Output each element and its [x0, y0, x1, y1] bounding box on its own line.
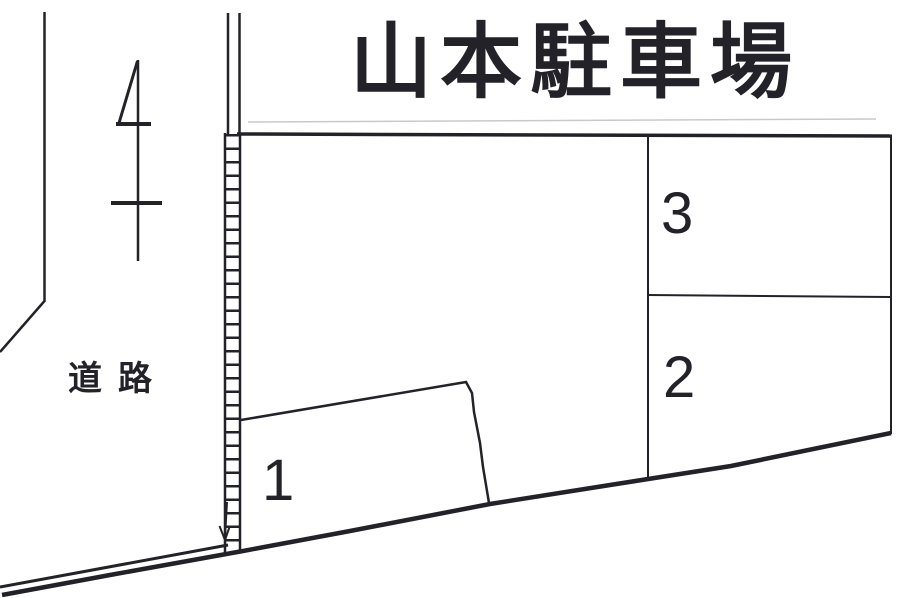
faint-scan-line — [248, 119, 876, 122]
space-1-label: 1 — [262, 452, 294, 510]
road-label: 道路 — [68, 362, 168, 396]
lot-bottom-boundary — [2, 433, 891, 595]
plan-title: 山本駐車場 — [350, 22, 800, 104]
space-divider-horizontal — [648, 295, 891, 297]
boundary-wall — [228, 13, 240, 134]
road-edge-line — [0, 545, 228, 587]
north-arrow-icon — [111, 60, 162, 261]
space-3-label: 3 — [661, 185, 693, 243]
space-2-label: 2 — [663, 349, 695, 407]
road-left-boundary — [0, 12, 45, 352]
parking-plan: 山本駐車場 道路 1 2 3 — [0, 0, 904, 598]
lot-top-boundary — [237, 134, 892, 136]
fence-ladder — [225, 133, 240, 553]
